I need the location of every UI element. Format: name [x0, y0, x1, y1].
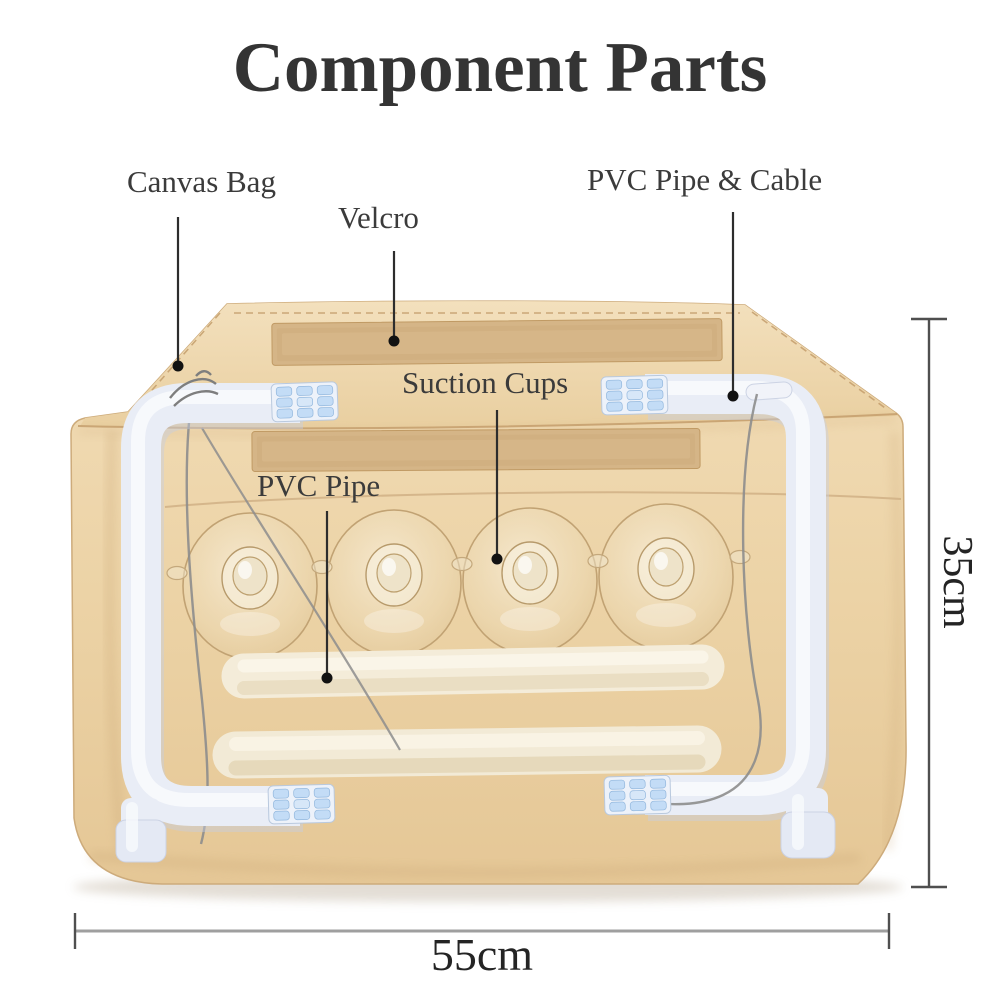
loose-pipe-1 [244, 657, 702, 688]
velcro-strip-top [272, 319, 722, 366]
label-canvas-bag: Canvas Bag [127, 164, 276, 200]
label-velcro: Velcro [338, 200, 419, 236]
page-title: Component Parts [0, 28, 1000, 109]
height-dimension-value: 35cm [933, 515, 981, 649]
suction-cup-1 [183, 513, 317, 659]
label-pvc-pipe: PVC Pipe [257, 468, 380, 504]
suction-cup-3 [463, 508, 597, 654]
label-suction-cups: Suction Cups [402, 365, 568, 401]
diagram-canvas: Component Parts Canvas Bag Velcro PVC Pi… [0, 0, 1000, 1000]
suction-holder-top-left [271, 382, 338, 422]
suction-cup-2 [327, 510, 461, 656]
suction-holder-bottom-right [604, 775, 671, 815]
velcro-strip-inner [252, 428, 700, 471]
cable-fitting [745, 381, 792, 400]
width-dimension-value: 55cm [372, 928, 592, 981]
product-illustration [0, 0, 1000, 1000]
suction-cup-4 [599, 504, 733, 650]
loose-pipe-2 [236, 738, 698, 768]
suction-holder-top-right [601, 375, 668, 415]
label-pvc-pipe-cable: PVC Pipe & Cable [587, 162, 822, 198]
suction-holder-bottom-left [268, 784, 335, 824]
